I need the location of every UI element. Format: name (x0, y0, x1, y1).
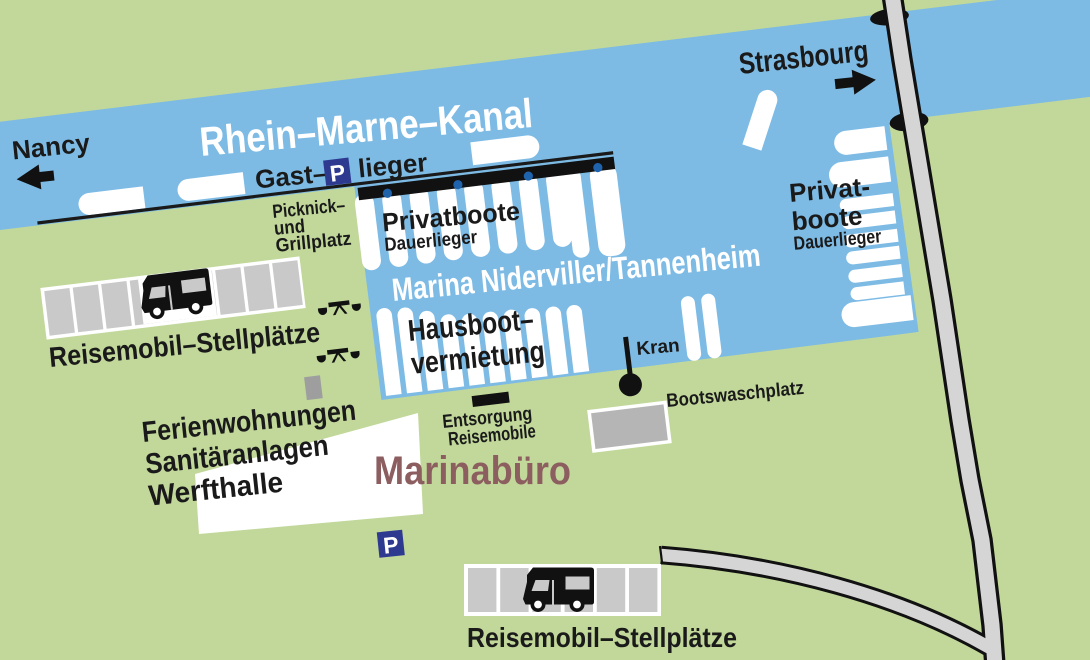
svg-text:Kran: Kran (636, 335, 681, 360)
svg-text:Marinabüro: Marinabüro (374, 449, 571, 493)
svg-text:P: P (328, 159, 346, 187)
svg-text:Reisemobil–Stellplätze: Reisemobil–Stellplätze (467, 622, 737, 653)
svg-text:P: P (382, 531, 400, 558)
